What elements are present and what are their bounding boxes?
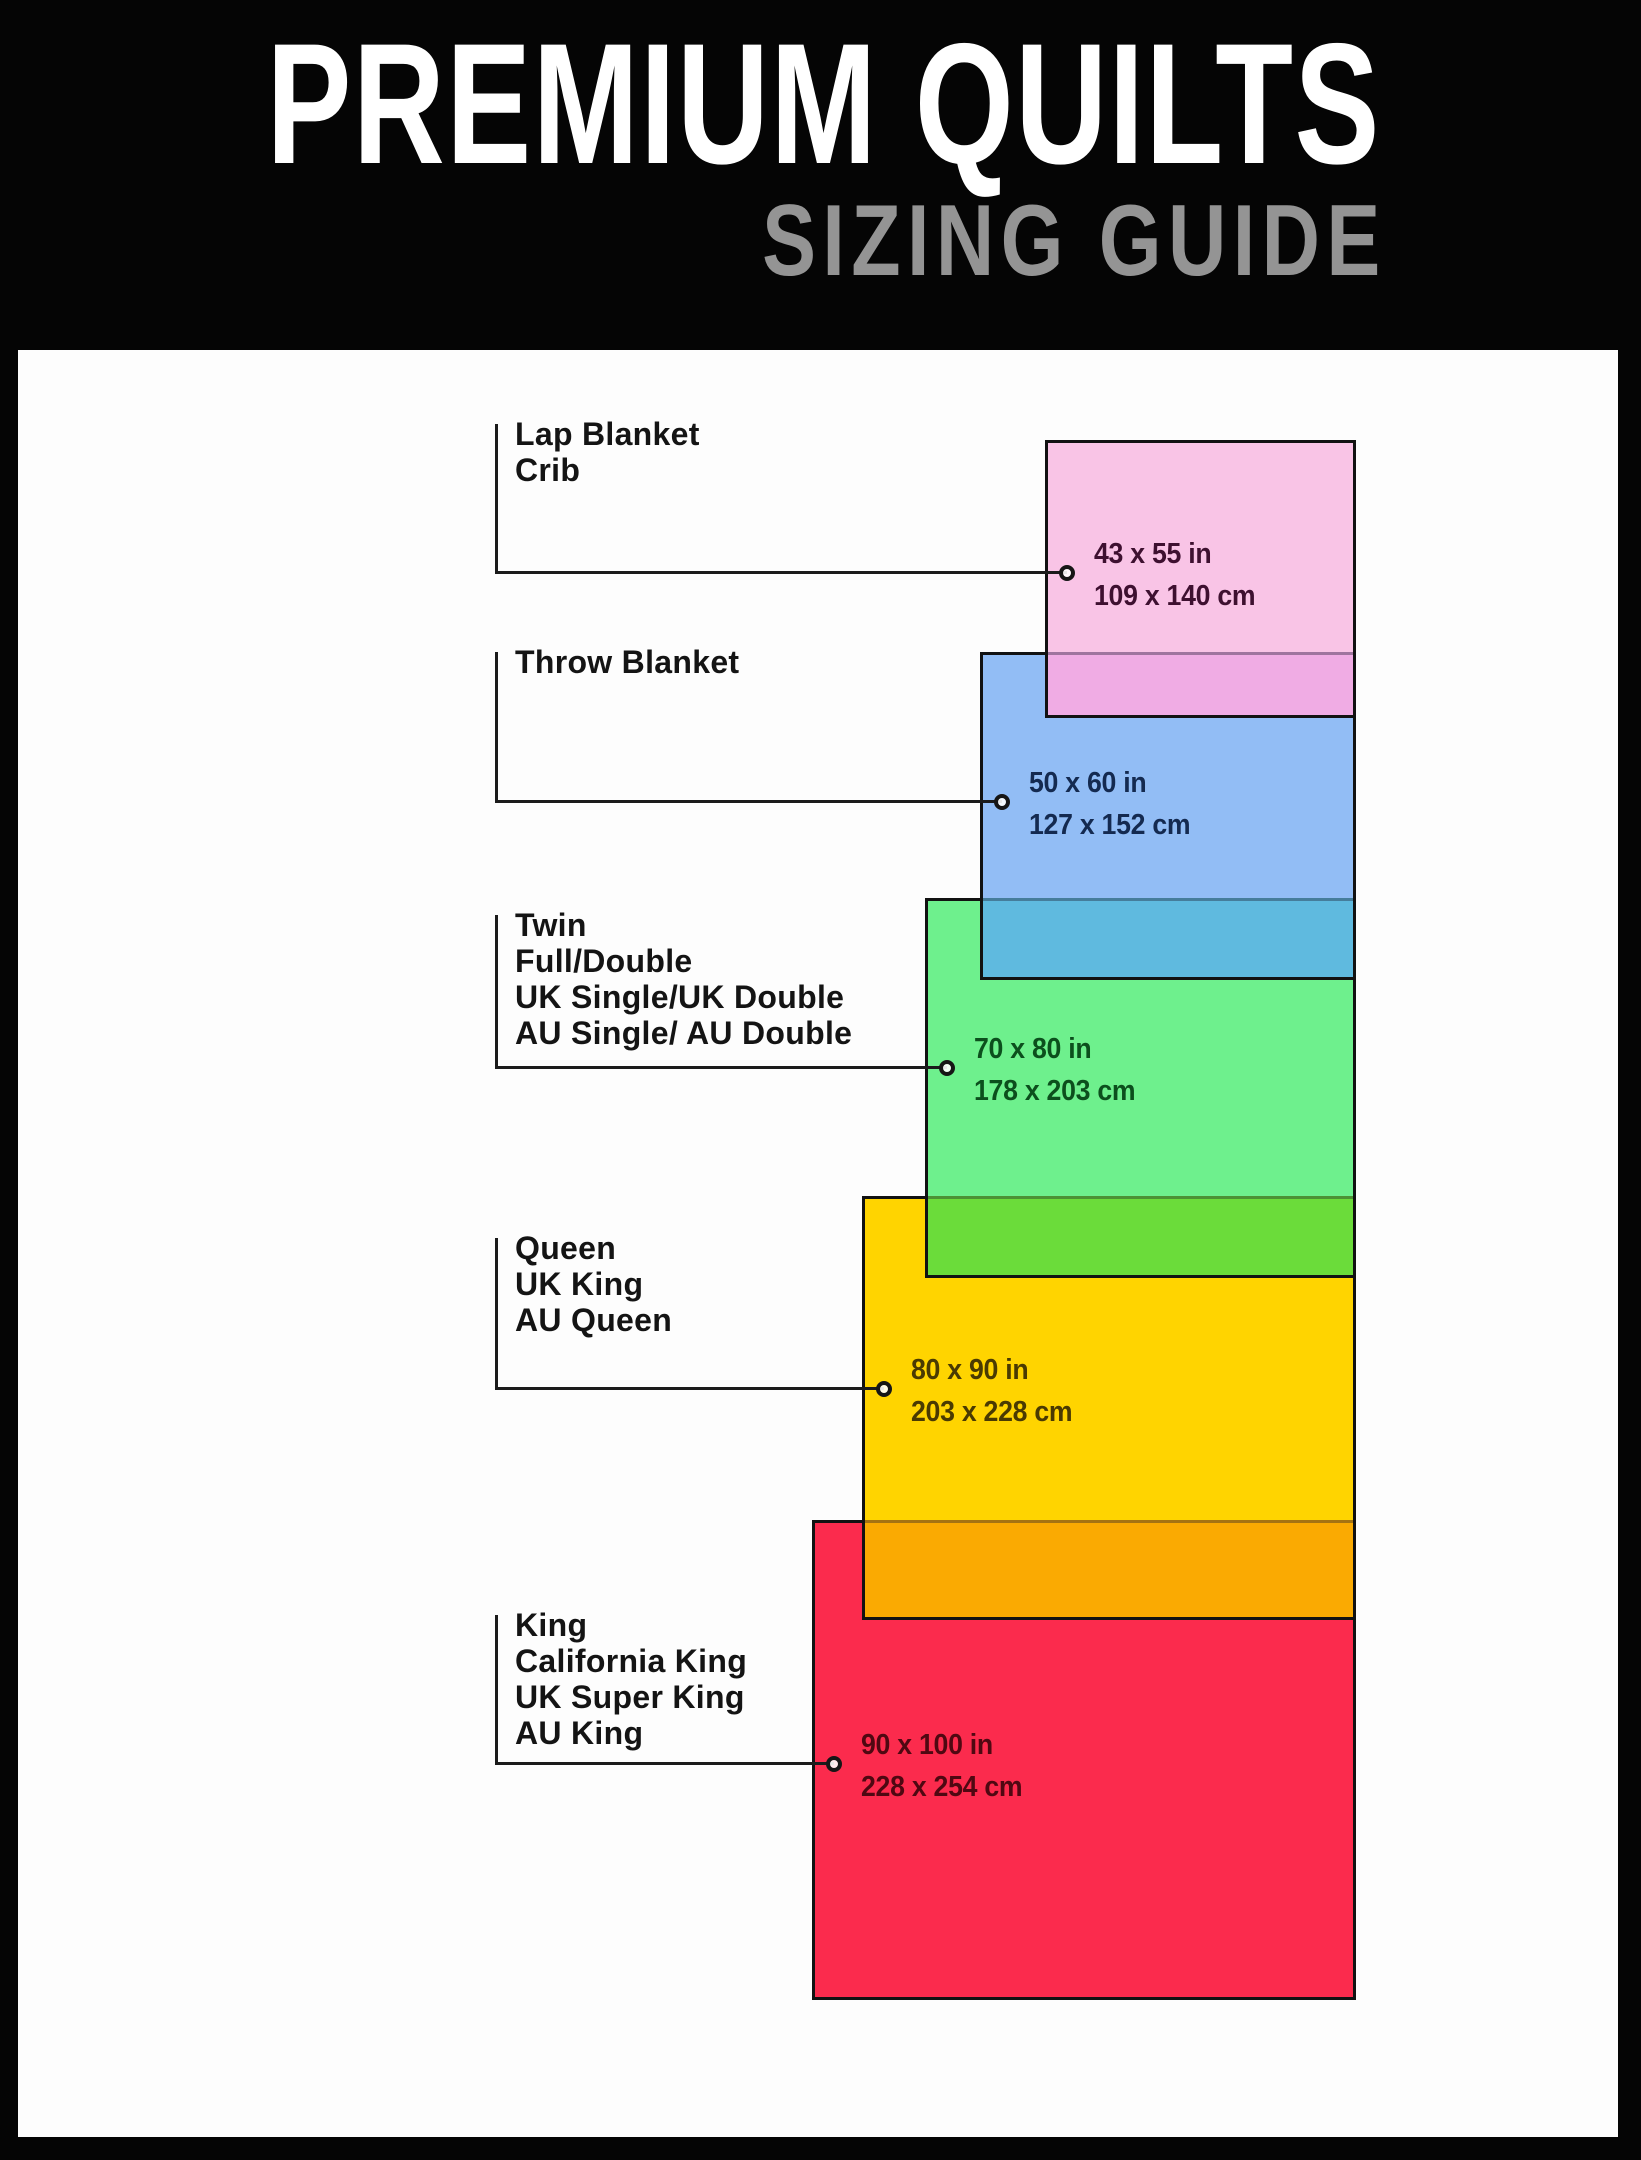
size-inches: 90 x 100 in [861, 1724, 1022, 1766]
connector-vertical-line [495, 652, 498, 802]
size-label-line: Throw Blanket [515, 644, 739, 680]
size-inches: 43 x 55 in [1094, 533, 1255, 575]
size-label-line: UK Super King [515, 1679, 747, 1715]
size-label-line: AU King [515, 1715, 747, 1751]
size-label-line: UK Single/UK Double [515, 979, 852, 1015]
connector-vertical-line [495, 424, 498, 573]
size-centimeters: 203 x 228 cm [911, 1391, 1072, 1433]
size-label-line: UK King [515, 1266, 672, 1302]
size-dimensions: 50 x 60 in 127 x 152 cm [1029, 762, 1190, 846]
quilt-sizing-infographic: { "header": { "title": "PREMIUM QUILTS",… [0, 0, 1641, 2160]
connector-dot-marker [1059, 565, 1075, 581]
size-centimeters: 109 x 140 cm [1094, 575, 1255, 617]
size-label: Throw Blanket [515, 644, 739, 680]
size-label-line: King [515, 1607, 747, 1643]
infographic-frame: PREMIUM QUILTS SIZING GUIDE Lap BlanketC… [0, 0, 1641, 2160]
size-label: Lap BlanketCrib [515, 416, 700, 488]
size-inches: 70 x 80 in [974, 1028, 1135, 1070]
connector-dot-marker [939, 1060, 955, 1076]
size-label: KingCalifornia KingUK Super KingAU King [515, 1607, 747, 1751]
size-inches: 80 x 90 in [911, 1349, 1072, 1391]
size-label-line: AU Queen [515, 1302, 672, 1338]
size-dimensions: 80 x 90 in 203 x 228 cm [911, 1349, 1072, 1433]
size-label: TwinFull/DoubleUK Single/UK DoubleAU Sin… [515, 907, 852, 1051]
size-overlap-strip [1048, 652, 1353, 715]
size-label-line: AU Single/ AU Double [515, 1015, 852, 1051]
size-label-line: Full/Double [515, 943, 852, 979]
size-label-line: Twin [515, 907, 852, 943]
size-label-line: Crib [515, 452, 700, 488]
size-centimeters: 178 x 203 cm [974, 1070, 1135, 1112]
connector-horizontal-line [495, 571, 1067, 574]
page-title: PREMIUM QUILTS [267, 18, 1381, 190]
connector-vertical-line [495, 1615, 498, 1764]
page-subtitle: SIZING GUIDE [763, 191, 1388, 292]
size-dimensions: 90 x 100 in 228 x 254 cm [861, 1724, 1022, 1808]
connector-dot-marker [826, 1756, 842, 1772]
connector-dot-marker [994, 794, 1010, 810]
connector-horizontal-line [495, 1387, 884, 1390]
connector-vertical-line [495, 915, 498, 1068]
size-inches: 50 x 60 in [1029, 762, 1190, 804]
connector-dot-marker [876, 1381, 892, 1397]
size-label-line: California King [515, 1643, 747, 1679]
connector-vertical-line [495, 1238, 498, 1389]
connector-horizontal-line [495, 800, 1002, 803]
size-centimeters: 127 x 152 cm [1029, 804, 1190, 846]
size-dimensions: 70 x 80 in 178 x 203 cm [974, 1028, 1135, 1112]
connector-horizontal-line [495, 1762, 834, 1765]
size-overlap-strip [928, 1196, 1353, 1275]
connector-horizontal-line [495, 1066, 947, 1069]
size-overlap-strip [865, 1520, 1353, 1617]
header: PREMIUM QUILTS SIZING GUIDE [0, 0, 1641, 350]
size-label: QueenUK KingAU Queen [515, 1230, 672, 1338]
size-overlap-strip [983, 898, 1353, 977]
size-dimensions: 43 x 55 in 109 x 140 cm [1094, 533, 1255, 617]
size-label-line: Queen [515, 1230, 672, 1266]
size-centimeters: 228 x 254 cm [861, 1766, 1022, 1808]
size-label-line: Lap Blanket [515, 416, 700, 452]
